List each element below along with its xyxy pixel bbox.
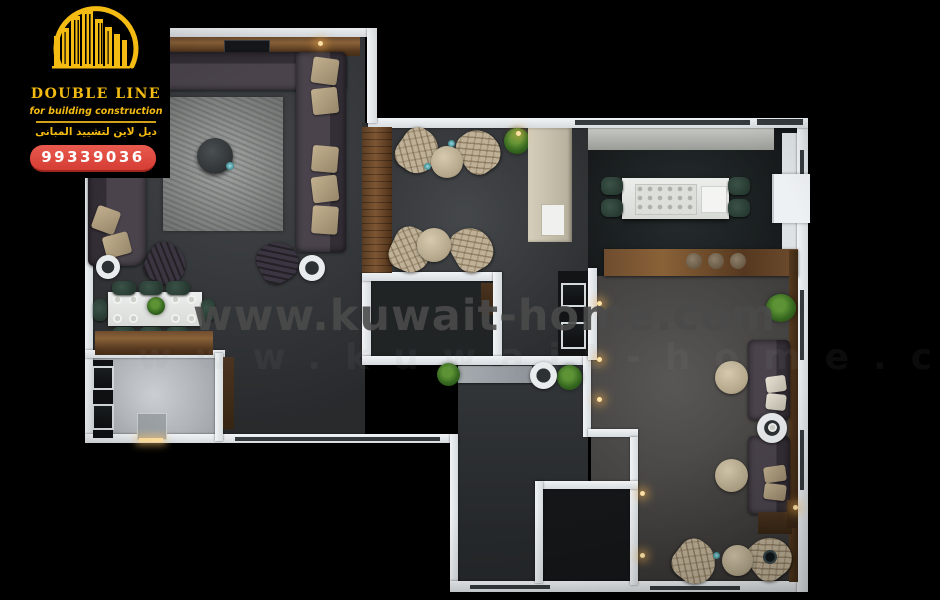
island-chair [601, 177, 623, 195]
logo-subtitle: for building construction [22, 106, 170, 117]
wall-darkroom-top [362, 272, 502, 281]
gold-skyline-arc-icon [46, 6, 146, 86]
place-setting [171, 314, 180, 323]
sofa-pillow [765, 393, 787, 411]
wall-light [640, 553, 645, 558]
place-setting [113, 314, 122, 323]
dining-chair [139, 281, 163, 295]
washbasin [92, 366, 114, 390]
decor-item [448, 140, 455, 147]
sofa-pillow [763, 483, 787, 502]
window-slot [575, 120, 750, 125]
sofa-pillow [311, 87, 340, 116]
dining-chair [112, 281, 136, 295]
dark-tray [763, 550, 777, 564]
watermark-text: www.kuwait-home.com [193, 291, 776, 341]
bar-stool [686, 253, 702, 269]
round-coffee-table [722, 545, 753, 576]
ottoman-pouf [715, 459, 748, 492]
dining-chair [93, 299, 107, 321]
dining-chair [166, 281, 190, 295]
bar-stool [730, 253, 746, 269]
window-slot [800, 430, 804, 490]
ceiling-light [318, 41, 323, 46]
sofa-pillow [763, 465, 787, 484]
floor-plan-render: www.kuwait-home.com www.kuwait-home.com [0, 0, 940, 600]
island-chair [728, 199, 750, 217]
wall-inner-room-top [535, 481, 638, 489]
ceiling-light [516, 131, 521, 136]
island-tray [701, 186, 727, 213]
place-setting [129, 295, 138, 304]
counter-sink [541, 204, 565, 236]
wall-light [640, 491, 645, 496]
island-serving-tray [635, 184, 697, 215]
inner-dark-room-floor [543, 489, 630, 582]
balcony-window-box [772, 174, 810, 223]
decor-item [424, 163, 431, 170]
wall-inner-room-left [535, 481, 543, 583]
bar-stool [708, 253, 724, 269]
sofa-pillow [311, 145, 339, 173]
watermark-ghost: www.kuwait-home.com [138, 337, 940, 378]
company-logo: DOUBLE LINE for building construction دي… [22, 0, 170, 178]
washbasin [92, 404, 114, 430]
sofa-pillow [311, 205, 339, 235]
logo-title: DOUBLE LINE [22, 86, 170, 102]
logo-arabic-name: ديل لاين لتشييد المبانى [22, 126, 170, 138]
wall-corridor-step [588, 429, 638, 437]
wall-leftwing-right [367, 28, 377, 123]
window-slot [470, 585, 550, 589]
wall-step [450, 434, 458, 590]
shower-tray [137, 413, 167, 440]
window-slot [650, 586, 740, 590]
phone-badge: 99339036 [30, 145, 156, 172]
window-slot [757, 119, 803, 125]
kitchen-top-counter [588, 128, 774, 150]
place-setting [171, 295, 180, 304]
window-slot [235, 437, 440, 441]
decor-item [226, 162, 234, 170]
decor-item [713, 552, 720, 559]
logo-divider [36, 121, 156, 123]
wall-light [597, 397, 602, 402]
island-chair [601, 199, 623, 217]
sofa-pillow [310, 56, 339, 85]
round-side-table [96, 255, 120, 279]
place-setting [113, 295, 122, 304]
wall-corridor-right [630, 437, 638, 585]
round-coffee-table [417, 228, 451, 262]
round-side-table [299, 255, 325, 281]
bathroom-light [139, 438, 163, 442]
place-setting [129, 314, 138, 323]
serving-dish [768, 423, 777, 432]
sofa-pillow [311, 175, 340, 204]
round-coffee-table [431, 146, 463, 178]
wall-light [793, 505, 798, 510]
island-chair [728, 177, 750, 195]
table-centerpiece-plant [147, 297, 165, 315]
